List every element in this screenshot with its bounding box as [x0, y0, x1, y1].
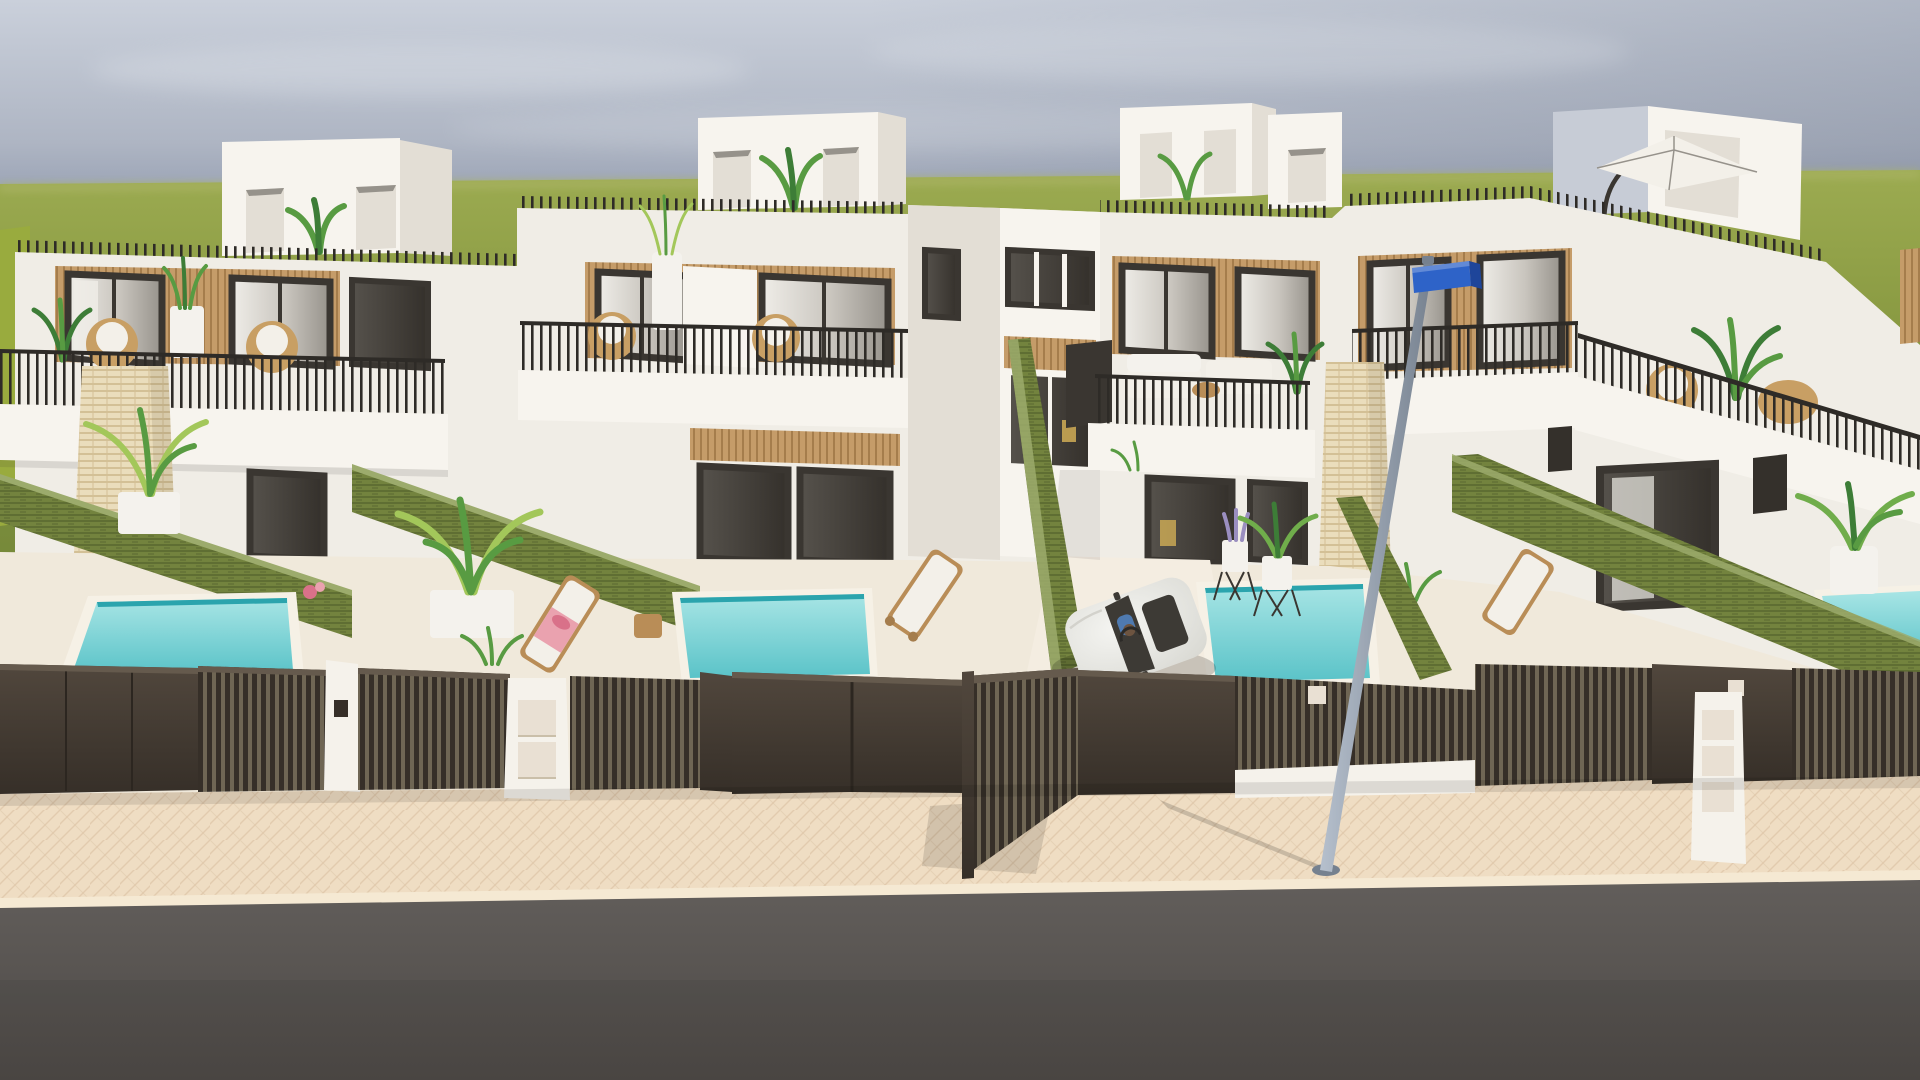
white-pier	[324, 660, 360, 792]
balcony-parapet	[518, 370, 910, 428]
roof-door	[246, 188, 284, 253]
meter-panel	[1702, 710, 1734, 740]
meter-panel	[1702, 746, 1734, 776]
slatted-fence	[1792, 668, 1920, 780]
rooftop-box-3	[1120, 103, 1276, 200]
upper-window-dark	[352, 280, 428, 368]
upper-window	[1238, 270, 1312, 358]
pool-2	[672, 588, 878, 684]
cloud	[870, 22, 1630, 82]
rooftop-box-1	[222, 138, 452, 256]
solid-gate	[850, 676, 966, 793]
slatted-fence	[1475, 664, 1652, 786]
roof-door	[1204, 129, 1236, 195]
white-planter-box	[430, 590, 514, 638]
white-pot	[1830, 546, 1878, 594]
rooftop-box-2	[698, 112, 906, 210]
sign-side-face	[1469, 261, 1482, 289]
side-opening	[1753, 454, 1787, 514]
cloud	[90, 44, 750, 96]
letterbox-pillar	[504, 678, 570, 800]
pool-water	[72, 598, 293, 674]
ground-glass-slider	[700, 466, 788, 562]
ground-window	[250, 472, 324, 560]
white-planter	[170, 306, 204, 358]
render-viewport	[0, 0, 1920, 1080]
roof-door	[1288, 148, 1326, 203]
pool-water	[680, 594, 870, 678]
stair-window	[925, 250, 958, 318]
dark-post	[700, 672, 732, 792]
window-mullion	[1034, 252, 1039, 306]
chair-cushion	[256, 325, 288, 357]
pool-3	[1196, 578, 1380, 688]
ground-wood-band	[690, 428, 900, 466]
clerestory-windows	[1008, 250, 1092, 308]
sofa-back	[1127, 354, 1201, 372]
roof-door	[356, 185, 396, 250]
white-planter	[652, 252, 682, 330]
gate-stile	[962, 671, 974, 879]
rooftop-box-4	[1268, 112, 1342, 209]
roof-door	[823, 147, 859, 207]
scene-canvas	[0, 0, 1920, 1080]
pole-cap	[1422, 256, 1434, 264]
box-side-face	[878, 112, 906, 206]
keypad	[334, 700, 348, 717]
solid-gate	[0, 664, 198, 794]
side-table-garden-2	[634, 614, 662, 638]
letterbox-drawer	[518, 742, 556, 778]
interior-chair-hint	[1160, 520, 1176, 546]
side-opening	[1548, 426, 1572, 472]
solid-driveway-gate	[1078, 670, 1235, 795]
slatted-gate	[198, 666, 328, 792]
ground-glass-slider	[800, 470, 890, 564]
balcony-parapet	[0, 404, 448, 470]
roof-door	[1140, 132, 1172, 198]
box-side-face	[400, 140, 452, 256]
balcony-parapet	[1088, 423, 1315, 478]
white-planter-box	[118, 492, 180, 534]
keypad	[1308, 686, 1326, 704]
slatted-fence	[570, 676, 700, 790]
letterbox-drawer	[518, 700, 556, 736]
road-vignette	[0, 980, 1920, 1080]
solid-gate	[732, 672, 850, 794]
slatted-fence	[358, 668, 510, 790]
window-mullion	[1164, 268, 1168, 352]
window-mullion	[1062, 254, 1067, 307]
wood-sliver-right-edge	[1900, 248, 1920, 344]
chair-cushion	[96, 322, 128, 354]
